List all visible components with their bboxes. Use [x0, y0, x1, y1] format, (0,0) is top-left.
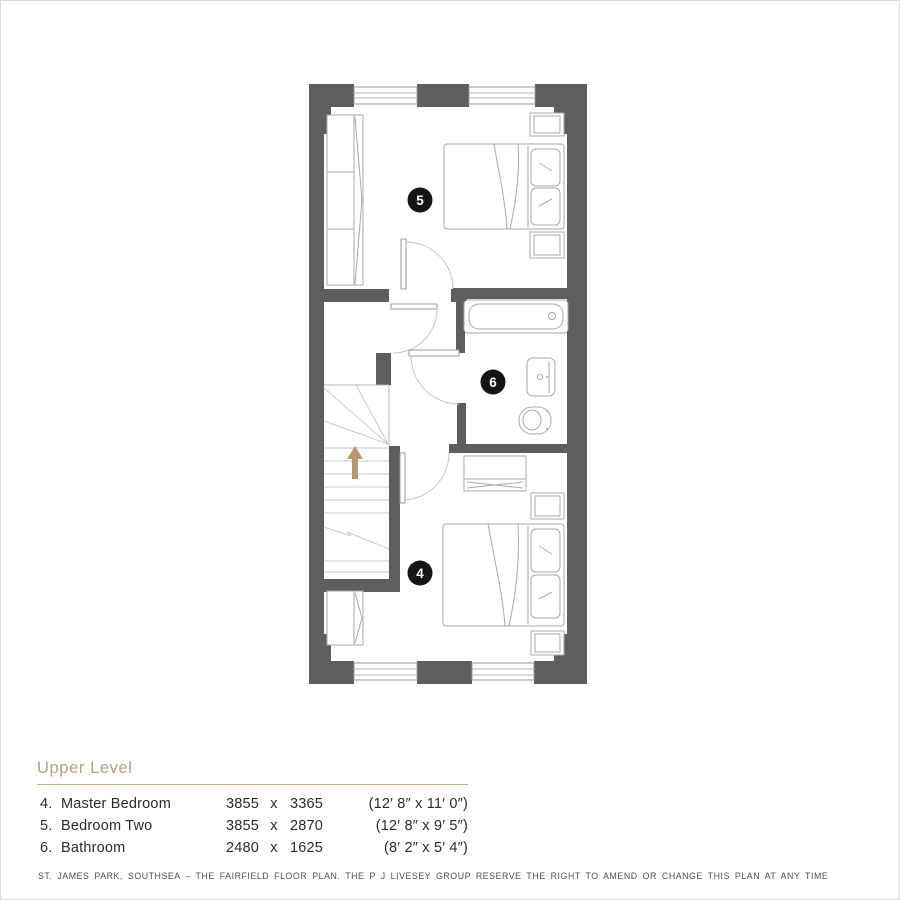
metric-separator: x: [259, 815, 289, 837]
room-label-4: 4: [408, 561, 433, 586]
metric-height: 2870: [289, 815, 339, 837]
nightstand: [531, 493, 564, 519]
wardrobe-master-bedroom: [327, 591, 363, 645]
door-bedroom-two: [401, 239, 453, 289]
imperial-dimensions: (12′ 8″ x 11′ 0″): [339, 793, 468, 815]
stairs: [324, 385, 389, 572]
page: 5 6 4 Upper Level 4. Master Bedroom 3855…: [0, 0, 900, 900]
metric-height: 1625: [289, 837, 339, 859]
room-number: 5.: [37, 815, 61, 837]
legend-row: 4. Master Bedroom 3855 x 3365 (12′ 8″ x …: [37, 793, 468, 815]
nightstand: [531, 631, 564, 655]
toilet: [519, 407, 551, 434]
window: [354, 87, 417, 104]
legend-row: 5. Bedroom Two 3855 x 2870 (12′ 8″ x 9′ …: [37, 815, 468, 837]
metric-width: 3855: [211, 793, 259, 815]
legend: Upper Level 4. Master Bedroom 3855 x 336…: [37, 758, 468, 859]
room-label-5: 5: [408, 188, 433, 213]
legend-row: 6. Bathroom 2480 x 1625 (8′ 2″ x 5′ 4″): [37, 837, 468, 859]
svg-text:4: 4: [416, 566, 424, 581]
metric-width: 2480: [211, 837, 259, 859]
imperial-dimensions: (8′ 2″ x 5′ 4″): [339, 837, 468, 859]
wardrobe-bedroom-two: [327, 115, 363, 285]
svg-text:6: 6: [489, 375, 497, 390]
legend-rows: 4. Master Bedroom 3855 x 3365 (12′ 8″ x …: [37, 793, 468, 859]
room-label-6: 6: [481, 370, 506, 395]
legend-rule: [37, 784, 468, 785]
bathtub: [464, 300, 568, 333]
room-name: Bathroom: [61, 837, 211, 859]
legend-title: Upper Level: [37, 758, 468, 778]
window: [469, 87, 535, 104]
bed-master-bedroom: [443, 524, 564, 626]
window: [354, 663, 417, 680]
bed-bedroom-two: [444, 144, 564, 229]
door-master-bedroom: [400, 453, 449, 503]
nightstand: [530, 232, 564, 258]
wash-basin: [527, 358, 555, 396]
metric-separator: x: [259, 793, 289, 815]
room-name: Bedroom Two: [61, 815, 211, 837]
metric-separator: x: [259, 837, 289, 859]
imperial-dimensions: (12′ 8″ x 9′ 5″): [339, 815, 468, 837]
room-number: 4.: [37, 793, 61, 815]
room-number: 6.: [37, 837, 61, 859]
room-name: Master Bedroom: [61, 793, 211, 815]
metric-width: 3855: [211, 815, 259, 837]
nightstand: [530, 113, 564, 136]
footer-disclaimer: ST. JAMES PARK, SOUTHSEA – THE FAIRFIELD…: [38, 871, 858, 881]
svg-text:5: 5: [416, 193, 424, 208]
dresser-master-bedroom: [464, 456, 526, 491]
door-cupboard: [391, 304, 437, 353]
window: [472, 663, 534, 680]
metric-height: 3365: [289, 793, 339, 815]
door-bathroom: [409, 350, 459, 404]
